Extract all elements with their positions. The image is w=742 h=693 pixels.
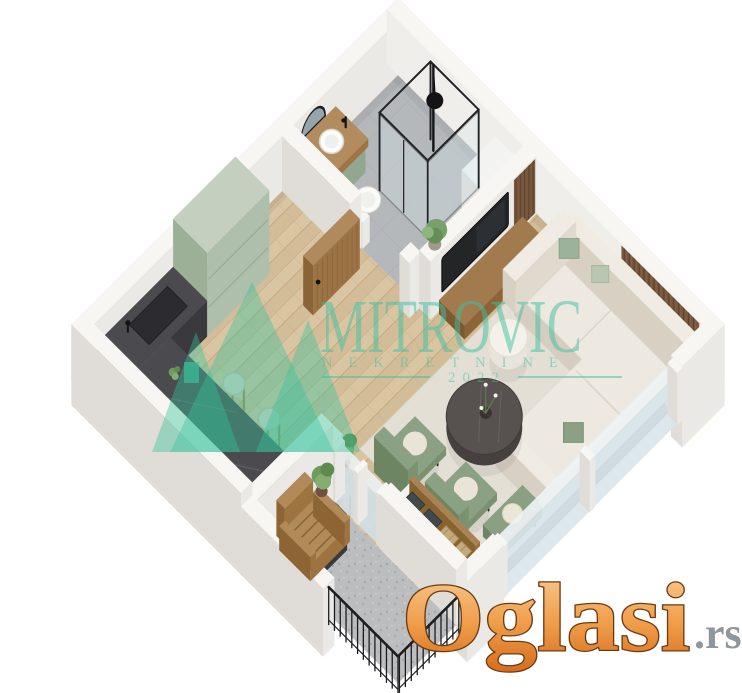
window-mullion [667,358,683,426]
window-mullion [580,445,596,513]
watermark-subtitle: NEKRETNINE [322,355,574,371]
sofa-pillow [559,239,579,259]
sofa-pillow [592,266,609,283]
vase-flower [479,406,483,410]
vase-flower [494,393,498,397]
toilet-seat [360,192,376,208]
door-handle [316,280,321,285]
floorplan-3d-render: MITROVIC NEKRETNINE 2022 Oglasi .rs [0,0,742,693]
partition-plant [422,227,434,239]
oglasi-tld: .rs [694,609,742,658]
logo-window-icon [184,362,199,383]
faucet-spout [341,118,345,122]
island-plant [174,366,180,372]
sofa-pillow [564,423,584,443]
island-plant [172,373,179,380]
floorplan-screenshot: MITROVIC NEKRETNINE 2022 Oglasi .rs [0,0,742,693]
kitchen-faucet-spout [125,320,130,325]
watermark-year: 2022 [448,370,506,386]
balcony-door-frame [354,459,368,525]
sink-basin-inner [325,134,339,148]
watermark-oglasi: Oglasi .rs [402,564,742,672]
shower-head [426,92,443,109]
oglasi-logo: Oglasi [402,564,690,672]
balcony-plant [320,463,334,477]
